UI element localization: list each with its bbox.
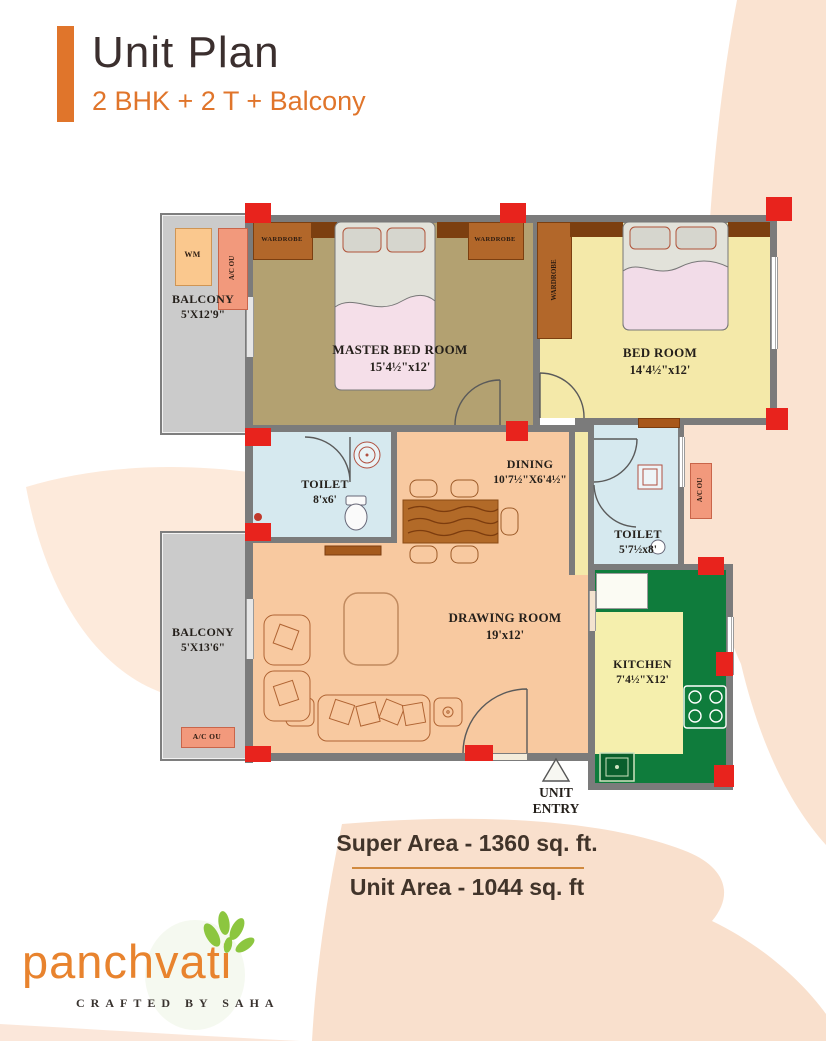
room-dims: 10'7½"X6'4½" bbox=[445, 473, 615, 488]
balcony-door-gap bbox=[246, 599, 254, 659]
wall bbox=[588, 564, 684, 570]
column bbox=[500, 203, 526, 223]
ac-ou-label: A/C OU bbox=[181, 732, 233, 741]
bedroom-window bbox=[771, 257, 778, 349]
room-dims: 19'x12' bbox=[415, 627, 595, 643]
column bbox=[245, 203, 271, 223]
bedroom-floor bbox=[540, 223, 770, 418]
corridor-floor bbox=[575, 425, 588, 575]
room-label-bedroom: BED ROOM 14'4½"x12' bbox=[570, 345, 750, 378]
room-name: DINING bbox=[445, 457, 615, 473]
room-dims: 5'7½x8' bbox=[588, 543, 688, 558]
unit-entry-line1: UNIT bbox=[522, 785, 590, 801]
room-label-kitchen: KITCHEN 7'4½"X12' bbox=[560, 657, 725, 688]
unit-plan-page: { "header": { "title": "Unit Plan", "sub… bbox=[0, 0, 826, 1041]
room-label-toilet2: TOILET 5'7½x8' bbox=[588, 527, 688, 558]
room-name: TOILET bbox=[275, 477, 375, 493]
wall bbox=[391, 430, 397, 542]
entry-arrow bbox=[543, 759, 569, 781]
room-dims: 8'x6' bbox=[275, 493, 375, 508]
room-name: KITCHEN bbox=[560, 657, 725, 673]
toilet2-window bbox=[679, 437, 685, 487]
page-subtitle: 2 BHK + 2 T + Balcony bbox=[92, 86, 366, 117]
room-dims: 5'X13'6" bbox=[160, 641, 246, 656]
room-label-balcony-tl: BALCONY 5'X12'9" bbox=[160, 292, 246, 323]
room-label-drawing: DRAWING ROOM 19'x12' bbox=[415, 610, 595, 643]
unit-entry-line2: ENTRY bbox=[522, 801, 590, 817]
room-name: TOILET bbox=[588, 527, 688, 543]
ac-ou-label: A/C OU bbox=[228, 256, 236, 280]
column bbox=[714, 765, 734, 787]
room-name: MASTER BED ROOM bbox=[310, 342, 490, 359]
column bbox=[245, 523, 271, 541]
column bbox=[766, 197, 792, 221]
room-name: BED ROOM bbox=[570, 345, 750, 362]
toilet-shelf bbox=[638, 418, 680, 428]
wardrobe-label: WARDROBE bbox=[253, 236, 311, 243]
room-label-toilet1: TOILET 8'x6' bbox=[275, 477, 375, 508]
room-dims: 7'4½"X12' bbox=[560, 673, 725, 688]
fridge bbox=[596, 573, 648, 609]
room-dims: 5'X12'9" bbox=[160, 308, 246, 323]
bed-headboard-strip bbox=[570, 222, 623, 237]
room-name: BALCONY bbox=[160, 292, 246, 308]
wall bbox=[726, 564, 733, 790]
logo-leaves-icon bbox=[182, 905, 260, 963]
bed-headboard-strip bbox=[728, 222, 770, 237]
ac-ou-label: A/C OU bbox=[696, 478, 704, 502]
wardrobe-label-vertical: WARDROBE bbox=[550, 259, 558, 300]
column bbox=[698, 557, 724, 575]
room-name: DRAWING ROOM bbox=[415, 610, 595, 627]
divider bbox=[352, 867, 584, 869]
room-dims: 15'4½"x12' bbox=[310, 359, 490, 375]
page-title: Unit Plan bbox=[92, 28, 280, 78]
bed-headboard-strip bbox=[437, 222, 468, 238]
wall bbox=[245, 753, 592, 761]
unit-area-text: Unit Area - 1044 sq. ft bbox=[317, 874, 617, 901]
column bbox=[245, 746, 271, 762]
unit-entry-label: UNIT ENTRY bbox=[522, 785, 590, 816]
column bbox=[506, 421, 528, 441]
super-area-text: Super Area - 1360 sq. ft. bbox=[317, 830, 617, 857]
room-label-dining: DINING 10'7½"X6'4½" bbox=[445, 457, 615, 488]
room-name: BALCONY bbox=[160, 625, 246, 641]
column bbox=[465, 745, 493, 761]
wall bbox=[245, 425, 592, 432]
bed-headboard-strip bbox=[311, 222, 337, 238]
wall bbox=[588, 783, 733, 790]
wm-label: WM bbox=[175, 250, 210, 259]
leaf-bottom-left-sliver bbox=[0, 1024, 300, 1041]
header-accent-bar bbox=[57, 26, 74, 122]
floorplan: BALCONY 5'X12'9" MASTER BED ROOM 15'4½"x… bbox=[160, 197, 780, 797]
wall bbox=[569, 425, 575, 575]
column bbox=[245, 428, 271, 446]
room-label-balcony-bl: BALCONY 5'X13'6" bbox=[160, 625, 246, 656]
column bbox=[766, 408, 788, 430]
room-label-master: MASTER BED ROOM 15'4½"x12' bbox=[310, 342, 490, 375]
room-dims: 14'4½"x12' bbox=[570, 362, 750, 378]
wardrobe-label: WARDROBE bbox=[468, 236, 522, 243]
brand-tagline: CRAFTED BY SAHA bbox=[76, 996, 280, 1011]
